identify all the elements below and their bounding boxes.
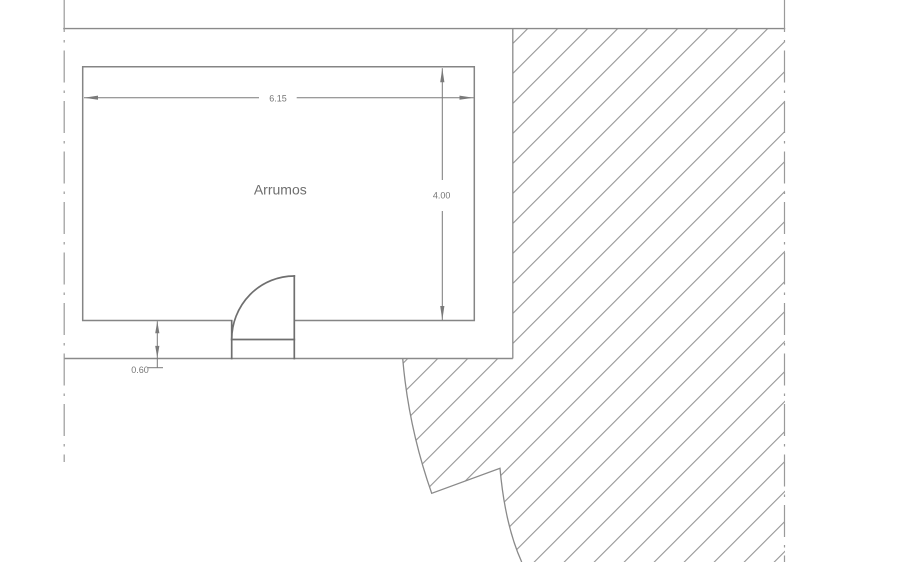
door-swing-arc [232,276,295,340]
hatch-region-fill [403,29,785,562]
dim-offset-arrow-bottom [155,346,159,358]
dimension-width: 6.15 [84,94,474,104]
dim-height-label: 4.00 [433,191,451,201]
dim-height-arrow-bottom [440,306,444,320]
dimension-height: 4.00 [433,68,451,320]
dim-offset-arrow-top [155,321,159,333]
room-label: Arrumos [254,182,307,198]
dim-offset-label: 0.60 [131,365,149,375]
floor-plan-drawing: 6.15 4.00 0.60 Arrumos [0,0,903,562]
dimension-offset: 0.60 [131,321,163,375]
dim-width-arrow-left [84,96,98,100]
dim-height-arrow-top [440,68,444,82]
dim-width-arrow-right [460,96,474,100]
floor-plan-canvas: 6.15 4.00 0.60 Arrumos [0,0,903,562]
door [232,276,295,359]
dim-width-label: 6.15 [269,94,287,104]
